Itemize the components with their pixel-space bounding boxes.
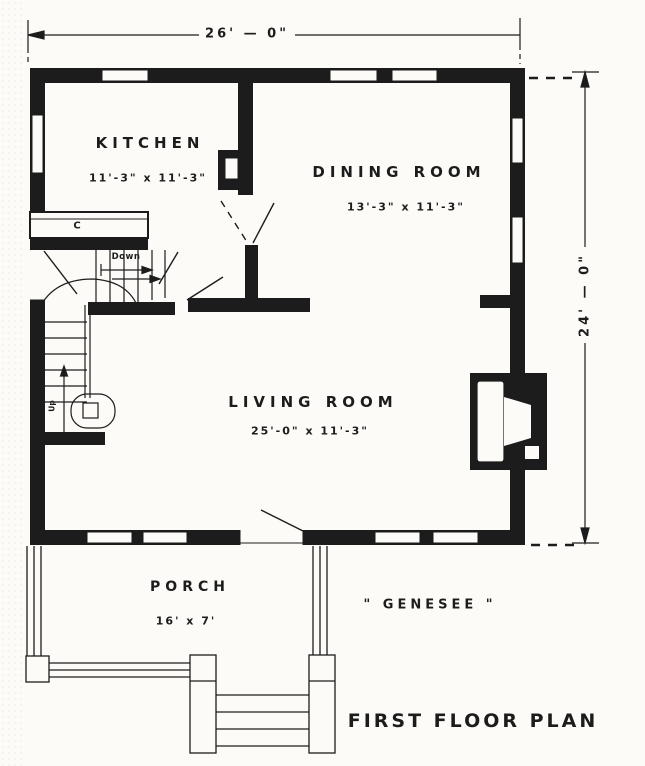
door-swing-kitchen-dining-dashed xyxy=(221,201,247,242)
porch-rail-left xyxy=(27,546,41,657)
door-swing-front-door xyxy=(261,510,303,531)
window-right-living xyxy=(512,217,523,263)
door-swings xyxy=(44,201,307,543)
overall-width-dimension: 26' — 0" xyxy=(199,27,295,42)
chimney xyxy=(218,150,245,190)
living-room-size: 25'-0" x 11'-3" xyxy=(251,425,369,438)
kitchen-counter xyxy=(30,212,148,238)
door-swing-hall-kitchen xyxy=(159,252,178,284)
window-right-dining xyxy=(512,118,523,163)
porch-rail-right xyxy=(313,546,327,655)
stair-up-label: Up xyxy=(48,400,57,411)
house-name: " GENESEE " xyxy=(363,598,496,613)
stair-newel-post xyxy=(83,403,98,418)
dining-room-size: 13'-3" x 11'-3" xyxy=(347,201,465,214)
window-bottom-1 xyxy=(87,532,132,543)
counter-label: C xyxy=(73,221,80,232)
window-bottom-3 xyxy=(375,532,420,543)
porch-post-step-left xyxy=(190,655,216,753)
stair-newel xyxy=(71,394,115,428)
floor-plan-sheet: 26' — 0" 24' — 0" KITCHEN 11'-3" x 11'-3… xyxy=(0,0,645,766)
window-top-dining-1 xyxy=(330,70,377,81)
wall-left-lower xyxy=(30,300,45,545)
kitchen-label: KITCHEN xyxy=(96,134,205,152)
wall-stub-dining-living xyxy=(480,295,510,308)
window-left-kitchen xyxy=(32,115,43,173)
porch-rail-front xyxy=(49,663,190,677)
door-swing-hall-living xyxy=(187,277,223,300)
porch-post-corner xyxy=(26,656,49,682)
door-swing-kitchen-dining xyxy=(253,203,274,243)
porch-structure xyxy=(26,546,335,753)
window-bottom-2 xyxy=(143,532,187,543)
overall-depth-dimension: 24' — 0" xyxy=(578,247,593,343)
wall-stair-landing xyxy=(88,302,175,315)
kitchen-size: 11'-3" x 11'-3" xyxy=(89,172,207,185)
wall-bottom-left xyxy=(30,530,240,545)
door-swing-rear-entry xyxy=(44,251,77,294)
wall-stair-bottom xyxy=(30,432,105,445)
porch-label: PORCH xyxy=(150,579,230,595)
living-room-label: LIVING ROOM xyxy=(228,393,397,411)
dining-room-label: DINING ROOM xyxy=(312,163,485,181)
window-bottom-4 xyxy=(433,532,478,543)
floor-plan-drawing xyxy=(0,0,645,766)
wall-stub-vertical xyxy=(245,245,258,300)
porch-size: 16' x 7' xyxy=(156,615,216,628)
staircase xyxy=(33,250,165,445)
window-top-kitchen xyxy=(102,70,148,81)
porch-steps xyxy=(216,695,309,746)
window-top-dining-2 xyxy=(392,70,437,81)
plan-title: FIRST FLOOR PLAN xyxy=(348,710,599,732)
porch-post-step-right xyxy=(309,655,335,753)
fireplace xyxy=(470,373,547,470)
stair-down-label: Down xyxy=(112,252,141,262)
wall-hall-living xyxy=(188,298,310,312)
